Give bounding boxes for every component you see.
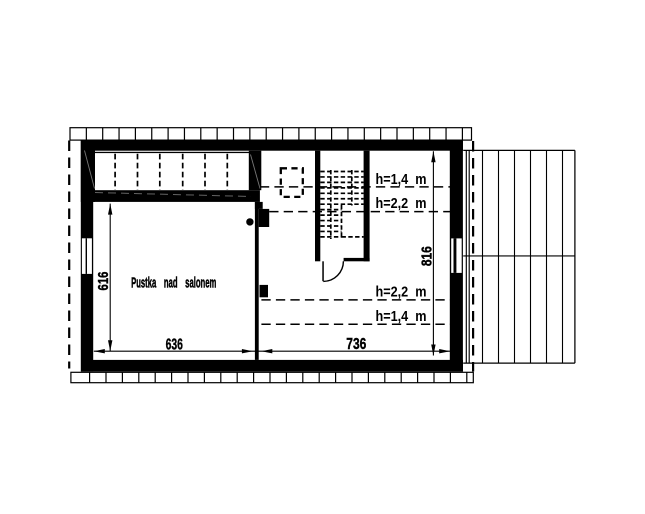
svg-text:736: 736 xyxy=(346,335,366,353)
svg-text:816: 816 xyxy=(418,246,434,266)
svg-text:h=1,4 m: h=1,4 m xyxy=(376,170,427,187)
svg-text:h=2,2 m: h=2,2 m xyxy=(376,283,427,300)
svg-text:h=2,2 m: h=2,2 m xyxy=(376,194,427,211)
svg-text:636: 636 xyxy=(166,335,183,353)
svg-text:h=1,4 m: h=1,4 m xyxy=(376,307,427,324)
svg-text:616: 616 xyxy=(95,272,112,291)
svg-text:Pustka nad salonem: Pustka nad salonem xyxy=(131,275,216,291)
